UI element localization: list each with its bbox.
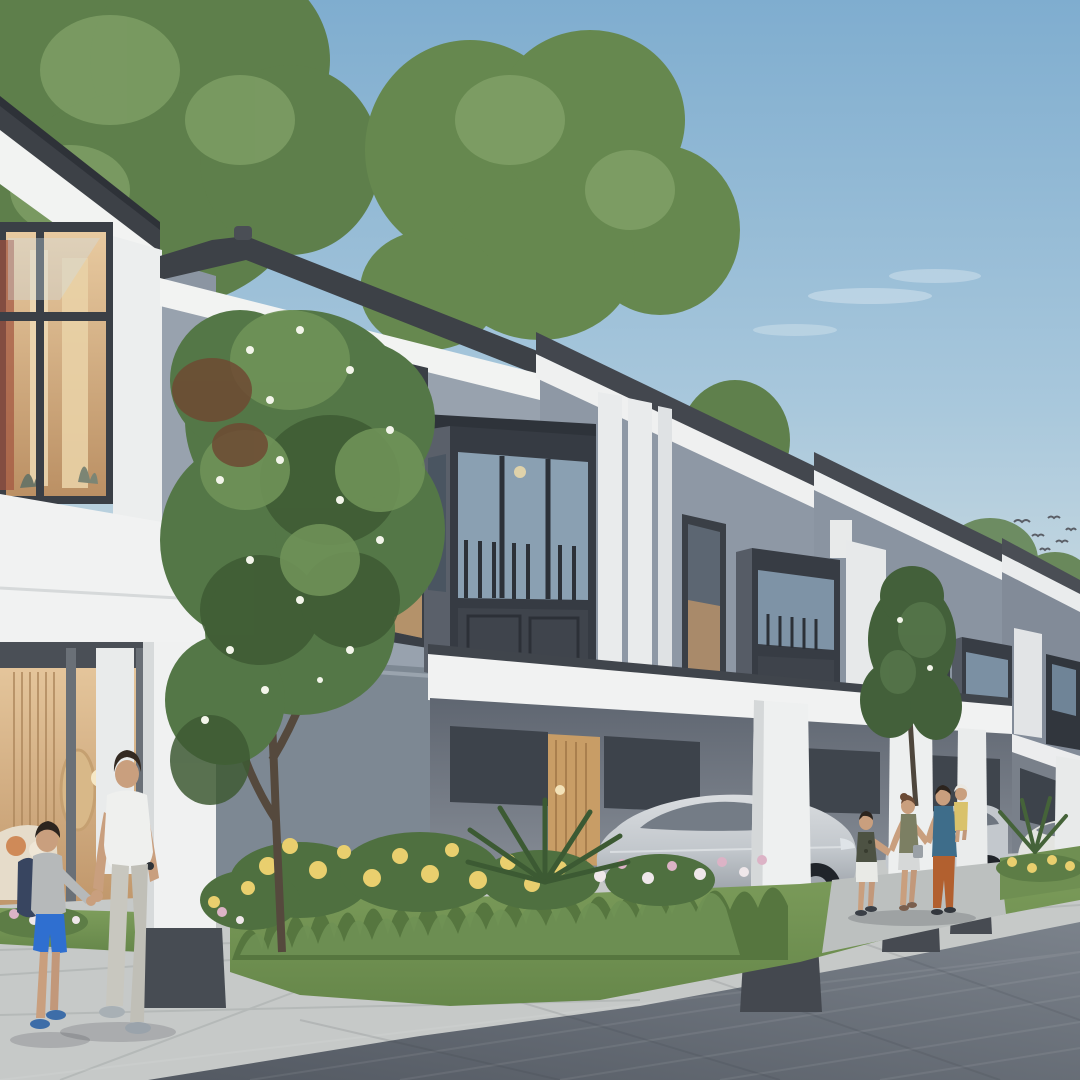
cloud-wisp: [753, 324, 837, 336]
interior-wall-lamp: [555, 785, 565, 795]
son-sweatshirt: [31, 853, 66, 918]
window-transom: [0, 312, 113, 321]
bird-icon: [1056, 541, 1068, 543]
shadow: [848, 910, 976, 926]
son-hand: [86, 896, 96, 906]
camo-spot: [868, 840, 872, 844]
right-flower-patch: [996, 854, 1080, 882]
sofa-cushion: [6, 836, 26, 856]
son-shoe: [30, 1019, 50, 1029]
father2-shoe: [931, 909, 943, 915]
father-head: [115, 760, 139, 788]
father-shoe: [125, 1022, 151, 1034]
house3-bay-side: [736, 548, 752, 688]
cloud-wisp: [889, 269, 981, 283]
townhouse-scene: [0, 0, 1080, 1080]
boy2-shoe: [855, 910, 867, 916]
roof-ridge-cap: [234, 226, 252, 240]
bird-icon: [1048, 517, 1060, 519]
son-shoe: [46, 1010, 66, 1020]
boy2-tee: [856, 832, 877, 863]
rendering-canvas: Daylight architectural rendering of a ro…: [0, 0, 1080, 1080]
cloud-wisp: [808, 288, 932, 304]
house5-bay-glass: [1052, 664, 1076, 716]
shadow: [10, 1032, 90, 1048]
pillar-base: [132, 928, 226, 1008]
blossom: [897, 617, 903, 623]
father-shoe: [99, 1006, 125, 1018]
mother-handbag: [913, 845, 923, 858]
bay-interior-lamp: [514, 466, 526, 478]
blossom: [927, 665, 933, 671]
house2-bay-window: [424, 414, 596, 678]
glass-wall-panel: [802, 748, 880, 814]
interior-panel: [62, 258, 88, 488]
house2-pilasters: [598, 392, 672, 700]
bird-icon: [1032, 535, 1044, 537]
house4-pilaster: [1014, 628, 1042, 738]
bird-icon: [1066, 529, 1076, 531]
boy2-shoe: [865, 906, 877, 912]
boy2-shorts: [856, 862, 878, 882]
mother-shoe: [907, 902, 917, 908]
glass-wall-panel: [450, 726, 548, 806]
toddler-head: [955, 788, 967, 801]
father-tshirt: [104, 791, 153, 869]
house1-upper-window: [0, 222, 113, 504]
camo-spot: [864, 849, 868, 853]
father2-shoe: [944, 907, 956, 913]
glass-door-frame: [66, 648, 76, 942]
bird-icon: [1040, 549, 1050, 551]
toddler-outfit: [954, 802, 968, 831]
